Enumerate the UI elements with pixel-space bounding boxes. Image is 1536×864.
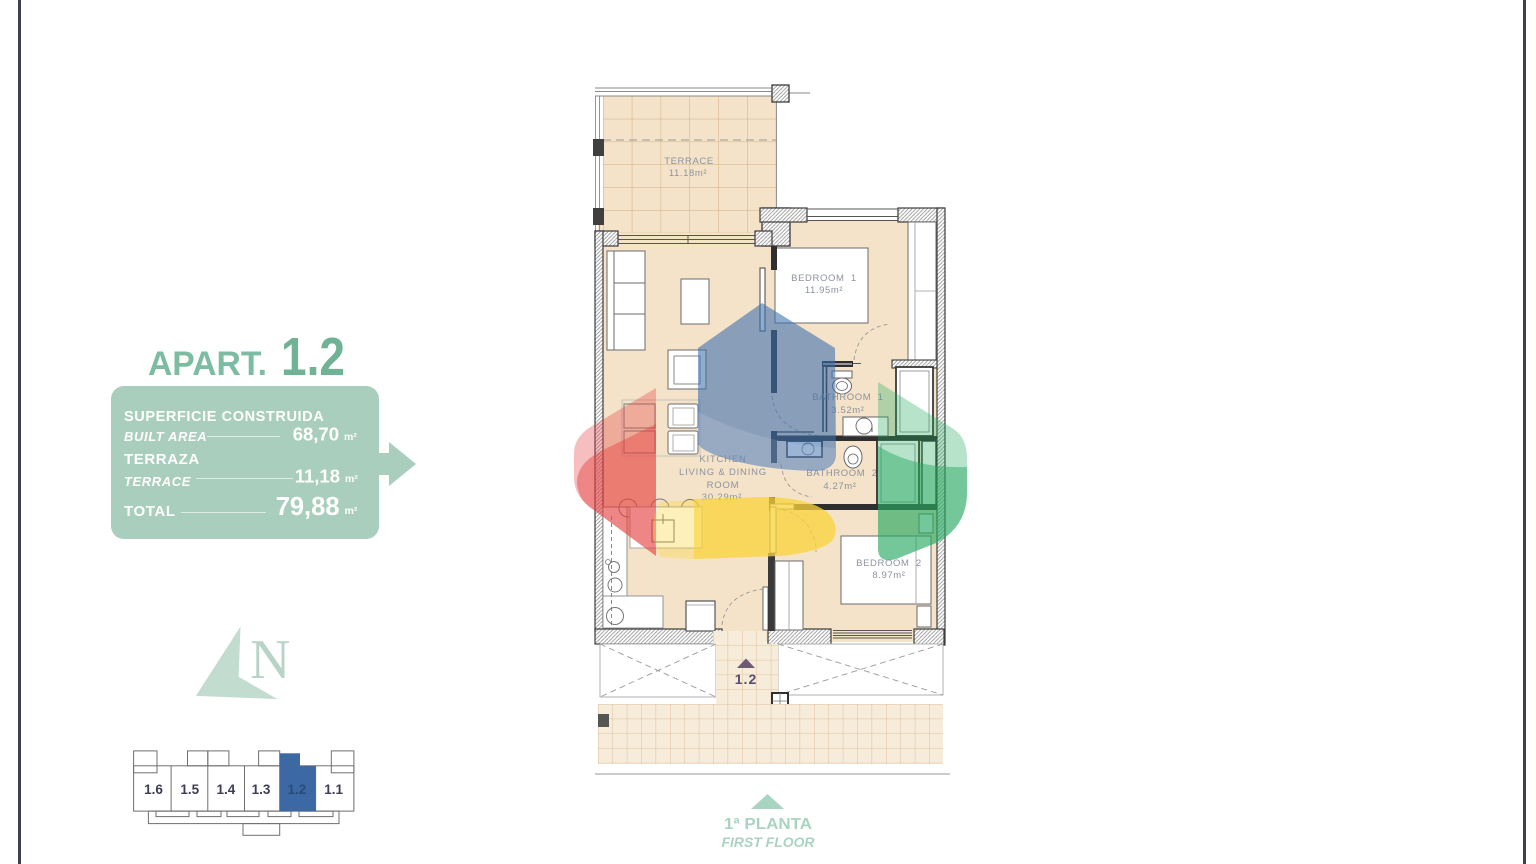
svg-text:APART.: APART. [148,345,267,383]
svg-text:1.6: 1.6 [144,782,163,797]
svg-text:11,18: 11,18 [295,466,340,487]
svg-text:11.95m²: 11.95m² [805,285,843,296]
svg-text:TERRACE: TERRACE [124,474,191,489]
svg-text:TERRAZA: TERRAZA [124,451,200,468]
svg-text:N: N [250,629,290,691]
svg-text:LIVING & DINING: LIVING & DINING [679,467,767,478]
svg-text:m²: m² [345,505,358,517]
svg-text:1ª PLANTA: 1ª PLANTA [724,816,812,833]
svg-text:BUILT AREA: BUILT AREA [124,429,207,444]
svg-text:68,70: 68,70 [293,424,339,445]
svg-text:1.4: 1.4 [217,782,236,797]
svg-text:TOTAL: TOTAL [124,503,176,520]
svg-text:ROOM: ROOM [707,480,740,491]
svg-text:FIRST FLOOR: FIRST FLOOR [722,835,815,850]
svg-text:m²: m² [344,431,357,443]
svg-text:BEDROOM 1: BEDROOM 1 [791,273,857,284]
svg-text:1.3: 1.3 [252,782,271,797]
svg-text:1.5: 1.5 [180,782,199,797]
svg-text:TERRACE: TERRACE [664,156,714,167]
svg-text:1.1: 1.1 [324,782,343,797]
svg-text:1.2: 1.2 [735,671,757,687]
svg-text:4.27m²: 4.27m² [823,481,856,492]
svg-text:1.2: 1.2 [281,327,345,387]
svg-text:3.52m²: 3.52m² [831,405,864,416]
svg-text:m²: m² [345,473,358,485]
svg-text:79,88: 79,88 [276,493,340,521]
svg-text:1.2: 1.2 [288,782,307,797]
svg-text:11.18m²: 11.18m² [669,168,707,179]
svg-text:8.97m²: 8.97m² [872,570,905,581]
